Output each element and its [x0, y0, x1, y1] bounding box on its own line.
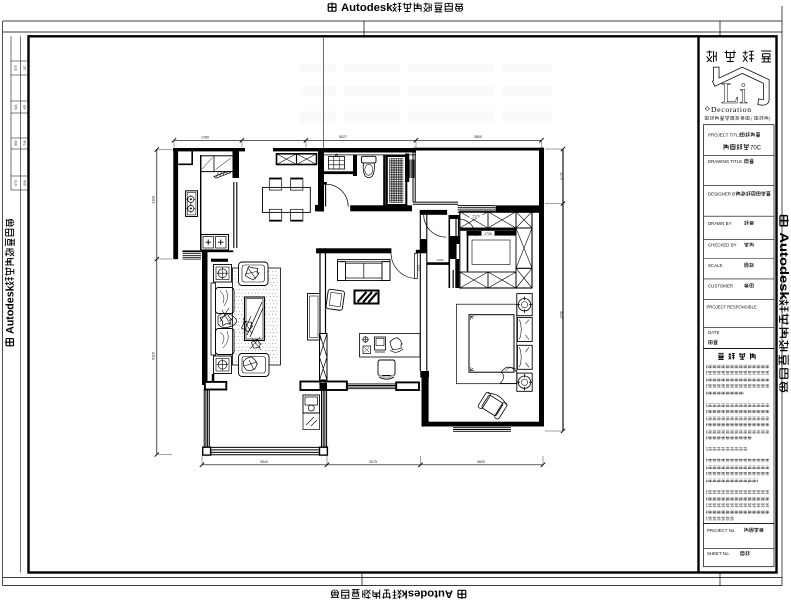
- svg-text:3147: 3147: [559, 311, 563, 319]
- svg-text:CHECKED BY: CHECKED BY: [708, 243, 737, 248]
- svg-text:3118: 3118: [152, 196, 156, 204]
- svg-text:STK: STK: [14, 179, 18, 186]
- svg-text:PROJECT No.: PROJECT No.: [707, 528, 735, 533]
- svg-text:1780: 1780: [201, 136, 209, 140]
- svg-text:DRAWING TITLE: DRAWING TITLE: [708, 159, 742, 164]
- svg-text:3800: 3800: [474, 135, 482, 139]
- svg-text:6115: 6115: [152, 352, 156, 360]
- svg-text:3540: 3540: [260, 460, 268, 464]
- svg-text:5C: 5C: [23, 65, 27, 70]
- svg-text:CUSTOMER: CUSTOMER: [708, 283, 733, 288]
- svg-text:PROJECT RESPONSIBLE: PROJECT RESPONSIBLE: [707, 305, 757, 310]
- svg-text:1683: 1683: [417, 264, 421, 271]
- svg-text:Decoration: Decoration: [711, 105, 752, 114]
- svg-text:1500: 1500: [437, 258, 444, 262]
- svg-text:869: 869: [14, 140, 18, 146]
- svg-text:N/A: N/A: [14, 103, 18, 109]
- svg-text:875: 875: [14, 65, 18, 71]
- svg-text:DESIGNER BY: DESIGNER BY: [708, 192, 738, 197]
- svg-text:A96: A96: [23, 180, 27, 186]
- svg-text:PROJECT TITLE: PROJECT TITLE: [708, 133, 742, 138]
- svg-text:SCALE: SCALE: [708, 263, 722, 268]
- svg-text:70C: 70C: [750, 146, 762, 152]
- svg-text:1170: 1170: [560, 172, 564, 180]
- svg-text:DRAWN BY: DRAWN BY: [708, 221, 732, 226]
- svg-text:3075: 3075: [369, 460, 377, 464]
- svg-text:746: 746: [23, 140, 27, 146]
- svg-text:SHEET No.: SHEET No.: [707, 551, 730, 556]
- svg-text:3600: 3600: [477, 460, 485, 464]
- svg-text:5027: 5027: [339, 135, 347, 139]
- svg-text:2170: 2170: [472, 215, 479, 219]
- svg-text:KR: KR: [23, 104, 27, 109]
- svg-text:1730: 1730: [484, 232, 492, 236]
- svg-text:DATE: DATE: [708, 330, 719, 335]
